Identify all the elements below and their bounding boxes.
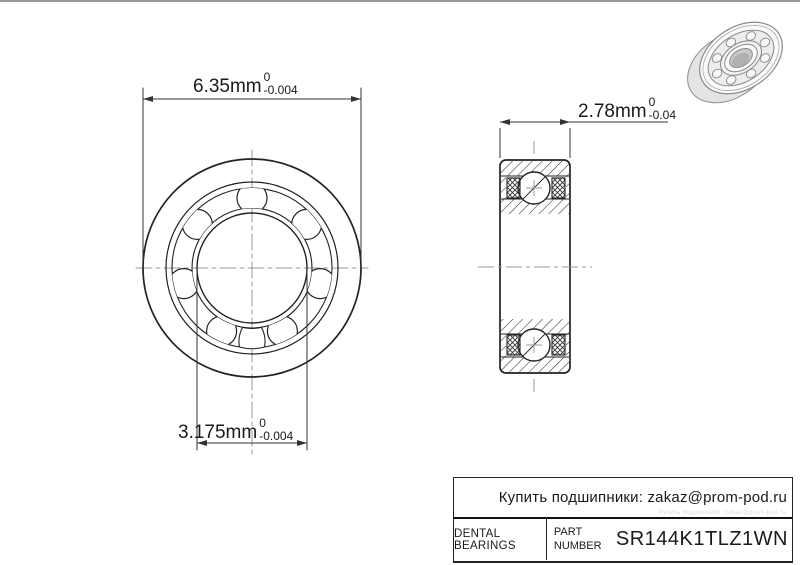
dim-width-tolerance: 0 -0.04 [649, 96, 676, 121]
part-number-value: SR144K1TLZ1WN [616, 528, 792, 551]
brand-cell: DENTAL BEARINGS [454, 519, 547, 560]
section-view [478, 119, 668, 392]
watermark-text: Купить подшипники: zakaz@prom-pod.ru [659, 510, 786, 516]
dim-bore-value: 3.175mm [178, 423, 257, 442]
ball [267, 316, 297, 346]
front-view [136, 88, 368, 457]
dim-outer-diameter-tolerance: 0 -0.004 [264, 71, 298, 96]
dim-outer-diameter: 6.35mm 0 -0.004 [193, 77, 298, 102]
section-ball-bottom [518, 329, 550, 361]
seal [507, 335, 520, 355]
ball [207, 316, 237, 346]
seal [552, 178, 565, 198]
part-number-label: PART NUMBER [547, 526, 616, 554]
dim-bore-tolerance: 0 -0.004 [259, 417, 293, 442]
seal [507, 178, 520, 198]
contact-text: Купить подшипники: zakaz@prom-pod.ru [499, 489, 787, 506]
seal [552, 335, 565, 355]
title-block-part-row: DENTAL BEARINGS PART NUMBER SR144K1TLZ1W… [454, 519, 792, 560]
bearing-3d-render [674, 7, 796, 117]
title-block-contact-row: Купить подшипники: zakaz@prom-pod.ru Куп… [454, 478, 792, 519]
part-cell: PART NUMBER SR144K1TLZ1WN [547, 519, 792, 560]
section-ball-top [518, 172, 550, 204]
dim-width-value: 2.78mm [578, 102, 647, 121]
dim-outer-diameter-value: 6.35mm [193, 77, 262, 96]
dim-width: 2.78mm 0 -0.04 [578, 102, 676, 127]
title-block: Купить подшипники: zakaz@prom-pod.ru Куп… [453, 477, 793, 563]
dim-bore: 3.175mm 0 -0.004 [178, 423, 293, 448]
cage-slot [239, 327, 265, 348]
